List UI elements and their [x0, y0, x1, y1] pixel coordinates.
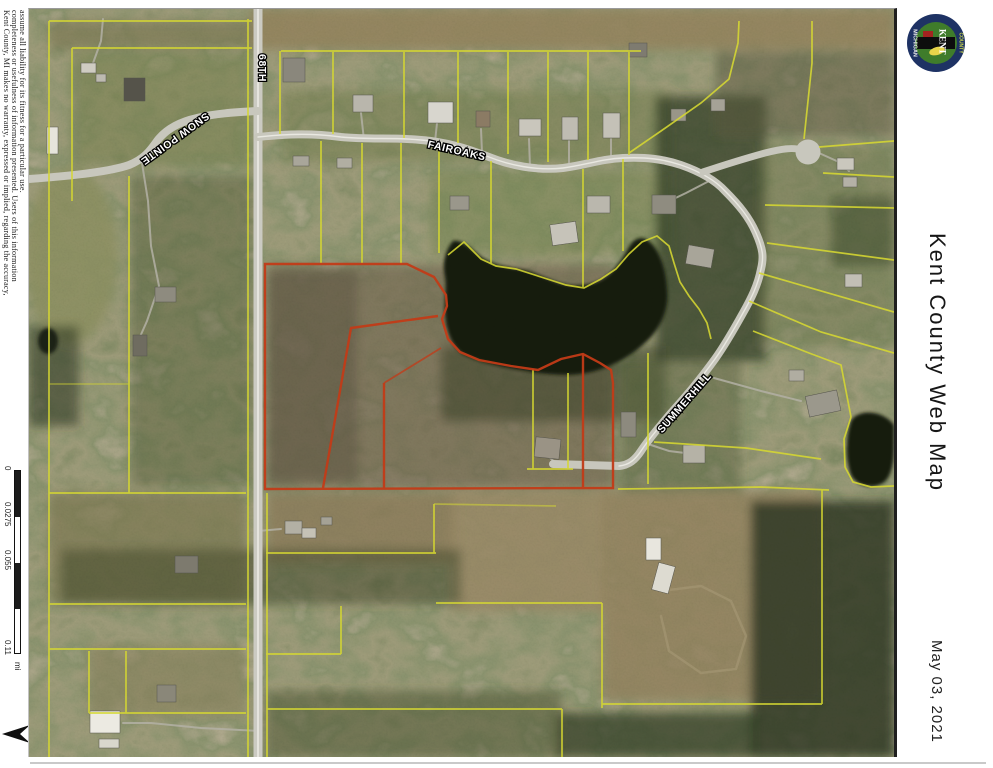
page-title: Kent County Web Map	[924, 233, 950, 492]
scan-grain	[29, 9, 894, 757]
page-bottom-rule	[30, 762, 986, 764]
aerial-map: 68TH SNOW POINTE FAIROAKS SUMMERHILL	[29, 9, 894, 757]
scale-tick-0: 0	[3, 466, 12, 470]
scale-bar	[14, 470, 21, 654]
scale-bar-segment	[15, 471, 20, 517]
scanned-map-page: Kent County, MI makes no warranty, expre…	[0, 0, 993, 768]
scale-tick-2: 0.055	[3, 550, 12, 570]
kent-county-logo: KENT MICHIGAN COUNTY	[905, 12, 969, 76]
disclaimer-line-3: assume all liability for its fitness for…	[18, 10, 27, 193]
logo-ring-left-text: MICHIGAN	[912, 29, 918, 57]
map-viewport: 68TH SNOW POINTE FAIROAKS SUMMERHILL	[28, 8, 897, 757]
scale-tick-1: 0.0275	[3, 502, 12, 526]
scale-bar-segment	[15, 563, 20, 609]
logo-banner-text: KENT	[938, 29, 948, 55]
scale-tick-3: 0.11	[3, 640, 12, 655]
culdesac-bulb	[796, 140, 821, 165]
road-label-68th: 68TH	[256, 54, 268, 82]
scale-unit: mi	[13, 662, 22, 670]
scale-bar-segment	[15, 609, 20, 655]
scale-bar-segment	[15, 517, 20, 563]
map-date: May 03, 2021	[928, 640, 945, 743]
logo-ring-right-text: COUNTY	[958, 32, 964, 54]
